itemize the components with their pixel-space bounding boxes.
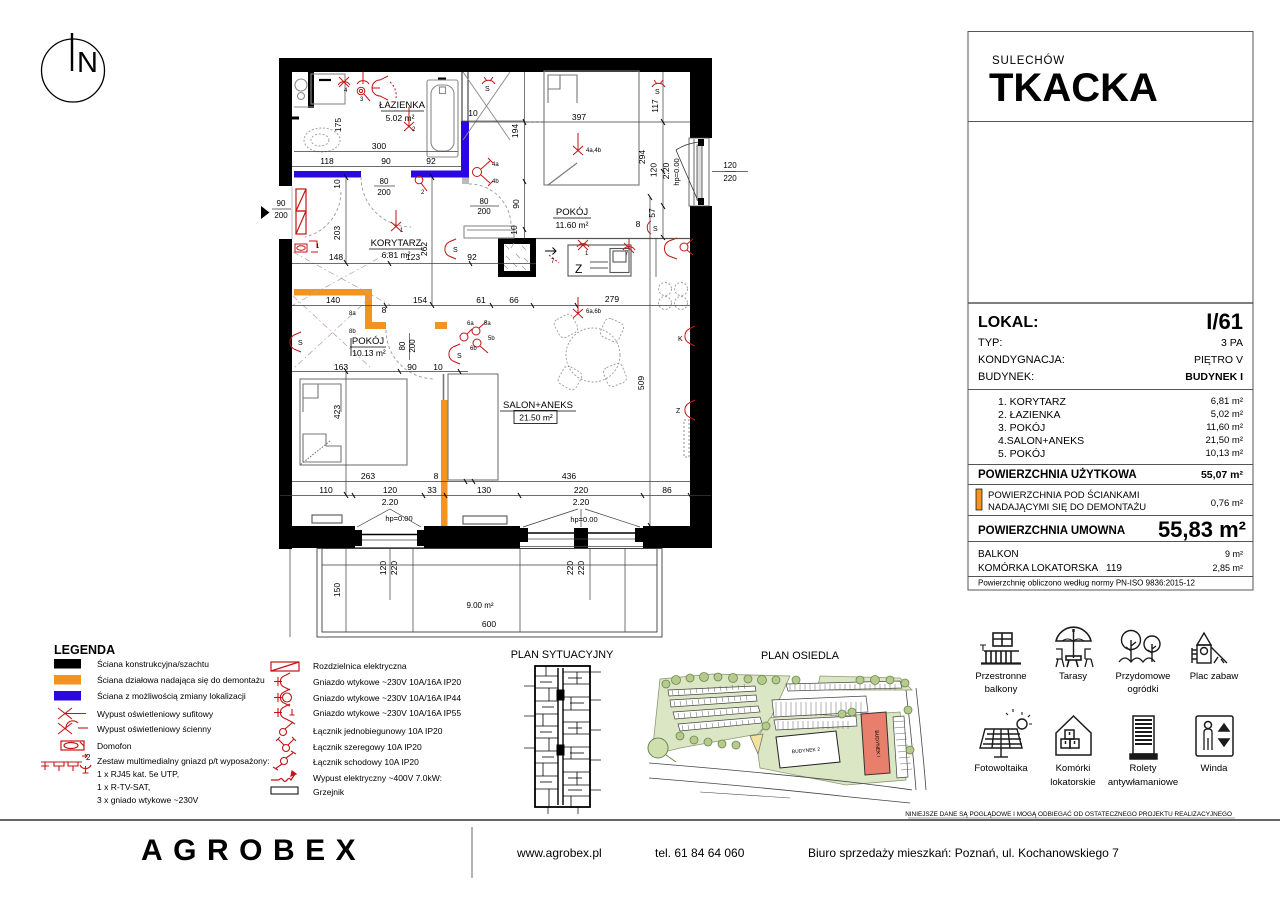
svg-text:163: 163 — [334, 362, 348, 372]
svg-text:194: 194 — [510, 124, 520, 138]
svg-text:120: 120 — [383, 485, 397, 495]
svg-text:5a: 5a — [484, 321, 491, 327]
svg-text:Wypust elektryczny ~400V 7.0kW: Wypust elektryczny ~400V 7.0kW: — [313, 773, 442, 783]
svg-text:10: 10 — [509, 225, 519, 235]
svg-text:BUDYNEK:: BUDYNEK: — [978, 371, 1034, 383]
svg-text:Zestaw multimedialny gniazd p/: Zestaw multimedialny gniazd p/t wyposażo… — [97, 756, 269, 766]
svg-text:90: 90 — [511, 199, 521, 209]
svg-text:80: 80 — [480, 197, 489, 206]
svg-text:21,50 m²: 21,50 m² — [1206, 435, 1244, 446]
svg-text:150: 150 — [332, 583, 342, 597]
svg-text:8b: 8b — [349, 329, 356, 335]
svg-text:3. POKÓJ: 3. POKÓJ — [998, 421, 1045, 434]
svg-text:hp=0.00: hp=0.00 — [385, 514, 412, 523]
svg-text:2. ŁAZIENKA: 2. ŁAZIENKA — [998, 409, 1060, 421]
svg-text:I/61: I/61 — [1206, 309, 1243, 334]
svg-text:Domofon: Domofon — [97, 741, 132, 751]
svg-text:80: 80 — [380, 177, 389, 186]
svg-text:Z: Z — [676, 408, 681, 415]
svg-text:220: 220 — [389, 561, 399, 575]
svg-text:Biuro sprzedaży mieszkań: Pozn: Biuro sprzedaży mieszkań: Poznań, ul. Ko… — [808, 846, 1119, 860]
svg-text:130: 130 — [477, 485, 491, 495]
svg-text:S: S — [485, 86, 490, 93]
svg-text:117: 117 — [650, 99, 660, 113]
svg-text:92: 92 — [467, 252, 477, 262]
svg-text:Łącznik jednobiegunowy 10A IP2: Łącznik jednobiegunowy 10A IP20 — [313, 726, 443, 736]
svg-text:N: N — [77, 47, 98, 79]
svg-text:hp=0.00: hp=0.00 — [570, 515, 597, 524]
svg-text:Powierzchnię obliczono według: Powierzchnię obliczono według normy PN-I… — [978, 579, 1196, 588]
svg-text:436: 436 — [562, 471, 576, 481]
svg-text:397: 397 — [572, 112, 586, 122]
svg-text:NINIEJSZE DANE SĄ POGLĄDOWE I: NINIEJSZE DANE SĄ POGLĄDOWE I MOGĄ ODBIE… — [905, 809, 1232, 818]
svg-text:10: 10 — [433, 362, 443, 372]
svg-text:Łącznik szeregowy 10A IP20: Łącznik szeregowy 10A IP20 — [313, 742, 422, 752]
svg-text:2.20: 2.20 — [661, 162, 671, 179]
svg-text:120: 120 — [378, 561, 388, 575]
svg-text:86: 86 — [662, 485, 672, 495]
svg-text:600: 600 — [482, 619, 496, 629]
svg-text:balkony: balkony — [985, 684, 1018, 695]
svg-text:148: 148 — [329, 252, 343, 262]
svg-text:66: 66 — [509, 295, 519, 305]
svg-text:423: 423 — [332, 405, 342, 419]
svg-text:10,13 m²: 10,13 m² — [1206, 448, 1244, 459]
svg-text:200: 200 — [408, 339, 417, 353]
svg-text:10.13 m²: 10.13 m² — [352, 348, 386, 358]
svg-text:80: 80 — [398, 341, 407, 350]
svg-text:Wypust oświetleniowy ścienny: Wypust oświetleniowy ścienny — [97, 724, 212, 734]
svg-text:POKÓJ: POKÓJ — [556, 207, 588, 218]
svg-text:220: 220 — [565, 561, 575, 575]
svg-text:8: 8 — [382, 305, 387, 315]
svg-text:8: 8 — [636, 219, 641, 229]
svg-text:21.50 m²: 21.50 m² — [519, 413, 553, 423]
svg-text:Winda: Winda — [1201, 763, 1229, 774]
svg-text:4b: 4b — [492, 179, 499, 185]
svg-text:AGROBEX: AGROBEX — [141, 834, 366, 867]
svg-text:S: S — [457, 353, 462, 360]
svg-text:9 m²: 9 m² — [1225, 549, 1243, 559]
svg-text:ogródki: ogródki — [1127, 684, 1158, 695]
svg-text:BUDYNEK I: BUDYNEK I — [1185, 371, 1243, 383]
svg-text:ŁAZIENKA: ŁAZIENKA — [379, 100, 426, 111]
svg-text:S: S — [453, 247, 458, 254]
svg-text:4a: 4a — [492, 162, 499, 168]
svg-text:2.20: 2.20 — [573, 497, 590, 507]
svg-text:POKÓJ: POKÓJ — [352, 336, 384, 347]
svg-text:110: 110 — [319, 485, 333, 495]
svg-text:POWIERZCHNIA UMOWNA: POWIERZCHNIA UMOWNA — [978, 525, 1125, 537]
svg-text:hp=0.00: hp=0.00 — [672, 158, 681, 185]
svg-text:175: 175 — [333, 118, 343, 132]
svg-text:2.20: 2.20 — [382, 497, 399, 507]
svg-text:8: 8 — [434, 471, 439, 481]
svg-text:6a: 6a — [467, 321, 474, 327]
svg-text:BALKON: BALKON — [978, 549, 1019, 560]
svg-text:3 x gniado wtykowe ~230V: 3 x gniado wtykowe ~230V — [97, 795, 199, 805]
svg-text:220: 220 — [576, 561, 586, 575]
svg-text:200: 200 — [477, 207, 491, 216]
svg-text:61: 61 — [476, 295, 486, 305]
svg-text:Z: Z — [575, 262, 582, 276]
svg-text:120: 120 — [649, 163, 659, 177]
svg-text:57: 57 — [647, 208, 657, 218]
svg-text:0,76 m²: 0,76 m² — [1211, 498, 1243, 509]
svg-text:294: 294 — [637, 150, 647, 164]
svg-text:1 x R-TV-SAT,: 1 x R-TV-SAT, — [97, 782, 150, 792]
svg-text:www.agrobex.pl: www.agrobex.pl — [516, 846, 602, 860]
svg-text:Gniazdo wtykowe ~230V 10A/16A: Gniazdo wtykowe ~230V 10A/16A IP55 — [313, 708, 461, 718]
svg-text:POWIERZCHNIA UŻYTKOWA: POWIERZCHNIA UŻYTKOWA — [978, 468, 1137, 481]
svg-text:8a: 8a — [349, 311, 356, 317]
svg-text:92: 92 — [426, 156, 436, 166]
svg-text:TKACKA: TKACKA — [989, 66, 1158, 110]
svg-text:5b: 5b — [488, 336, 495, 342]
svg-text:Tarasy: Tarasy — [1059, 671, 1087, 682]
svg-text:Ściana działowa nadająca się d: Ściana działowa nadająca się do demontaż… — [97, 674, 265, 685]
svg-text:119: 119 — [1106, 563, 1122, 574]
svg-text:6a,6b: 6a,6b — [586, 309, 602, 315]
svg-text:Przydomowe: Przydomowe — [1116, 671, 1171, 682]
svg-text:200: 200 — [377, 188, 391, 197]
svg-text:220: 220 — [574, 485, 588, 495]
svg-text:lokatorskie: lokatorskie — [1050, 777, 1095, 788]
svg-text:Przestronne: Przestronne — [975, 671, 1026, 682]
svg-text:11,60 m²: 11,60 m² — [1206, 422, 1243, 433]
svg-text:55,83 m²: 55,83 m² — [1158, 517, 1246, 542]
svg-text:tel. 61 84 64 060: tel. 61 84 64 060 — [655, 846, 745, 860]
svg-text:11.60 m²: 11.60 m² — [556, 220, 589, 230]
svg-text:Plac zabaw: Plac zabaw — [1190, 671, 1239, 682]
svg-text:Łącznik schodowy 10A IP20: Łącznik schodowy 10A IP20 — [313, 757, 419, 767]
svg-text:33: 33 — [427, 485, 437, 495]
svg-text:118: 118 — [320, 156, 334, 166]
svg-text:POWIERZCHNIA POD ŚCIANKAMI: POWIERZCHNIA POD ŚCIANKAMI — [988, 489, 1140, 501]
svg-text:10: 10 — [468, 108, 478, 118]
svg-text:LOKAL:: LOKAL: — [978, 314, 1038, 331]
svg-text:200: 200 — [274, 211, 288, 220]
svg-text:SALON+ANEKS: SALON+ANEKS — [503, 400, 573, 411]
svg-text:Gniazdo wtykowe ~230V 10A/16A: Gniazdo wtykowe ~230V 10A/16A IP44 — [313, 693, 461, 703]
svg-text:1 x RJ45 kat. 5e UTP,: 1 x RJ45 kat. 5e UTP, — [97, 769, 179, 779]
svg-text:2,85 m²: 2,85 m² — [1212, 563, 1243, 573]
svg-text:PLAN OSIEDLA: PLAN OSIEDLA — [761, 650, 840, 662]
svg-text:9.00 m²: 9.00 m² — [466, 601, 493, 610]
svg-text:5,02 m²: 5,02 m² — [1211, 409, 1243, 420]
svg-text:5. POKÓJ: 5. POKÓJ — [998, 447, 1045, 460]
svg-text:KONDYGNACJA:: KONDYGNACJA: — [978, 354, 1065, 366]
svg-text:TYP:: TYP: — [978, 337, 1002, 349]
svg-text:1. KORYTARZ: 1. KORYTARZ — [998, 396, 1066, 408]
svg-text:263: 263 — [361, 471, 375, 481]
svg-text:KORYTARZ: KORYTARZ — [371, 238, 422, 249]
svg-text:antywłamaniowe: antywłamaniowe — [1108, 777, 1178, 788]
svg-text:120: 120 — [723, 161, 737, 170]
svg-text:PIĘTRO V: PIĘTRO V — [1194, 354, 1243, 366]
svg-text:3 PA: 3 PA — [1221, 337, 1243, 349]
svg-text:PLAN SYTUACYJNY: PLAN SYTUACYJNY — [511, 649, 614, 661]
svg-text:KOMÓRKA LOKATORSKA: KOMÓRKA LOKATORSKA — [978, 561, 1099, 574]
svg-text:S: S — [653, 226, 658, 233]
svg-text:10: 10 — [332, 179, 342, 189]
svg-text:LEGENDA: LEGENDA — [54, 643, 115, 657]
svg-text:Grzejnik: Grzejnik — [313, 787, 345, 797]
svg-text:Ściana konstrukcyjna/szachtu: Ściana konstrukcyjna/szachtu — [97, 658, 209, 669]
svg-text:2: 2 — [86, 753, 91, 762]
svg-text:NADAJĄCYMI SIĘ DO DEMONTAŻU: NADAJĄCYMI SIĘ DO DEMONTAŻU — [988, 502, 1146, 513]
svg-text:Wypust oświetleniowy sufitowy: Wypust oświetleniowy sufitowy — [97, 709, 214, 719]
svg-text:300: 300 — [372, 141, 386, 151]
svg-text:4.SALON+ANEKS: 4.SALON+ANEKS — [998, 435, 1084, 447]
svg-text:5.02 m²: 5.02 m² — [386, 113, 415, 123]
svg-text:S: S — [655, 89, 660, 96]
svg-text:90: 90 — [277, 199, 286, 208]
svg-text:55,07 m²: 55,07 m² — [1201, 469, 1244, 481]
svg-text:Fotowoltaika: Fotowoltaika — [974, 763, 1028, 774]
svg-text:Rolety: Rolety — [1130, 763, 1157, 774]
svg-text:S: S — [298, 340, 303, 347]
svg-text:4a,4b: 4a,4b — [586, 148, 602, 154]
svg-text:Gniazdo wtykowe ~230V 10A/16A: Gniazdo wtykowe ~230V 10A/16A IP20 — [313, 677, 461, 687]
svg-text:154: 154 — [413, 295, 427, 305]
svg-text:90: 90 — [381, 156, 391, 166]
svg-text:220: 220 — [723, 174, 737, 183]
svg-text:262: 262 — [419, 242, 429, 256]
svg-text:Ściana z możliwością zmiany lo: Ściana z możliwością zmiany lokalizacji — [97, 690, 246, 701]
svg-text:90: 90 — [407, 362, 417, 372]
svg-text:Rozdzielnica elektryczna: Rozdzielnica elektryczna — [313, 661, 407, 671]
svg-text:140: 140 — [326, 295, 340, 305]
svg-text:279: 279 — [605, 294, 619, 304]
svg-text:6,81 m²: 6,81 m² — [1211, 396, 1243, 407]
svg-text:6b: 6b — [470, 346, 477, 352]
svg-text:203: 203 — [332, 226, 342, 240]
svg-text:Komórki: Komórki — [1056, 763, 1091, 774]
svg-text:509: 509 — [636, 376, 646, 390]
svg-text:K: K — [678, 336, 683, 343]
